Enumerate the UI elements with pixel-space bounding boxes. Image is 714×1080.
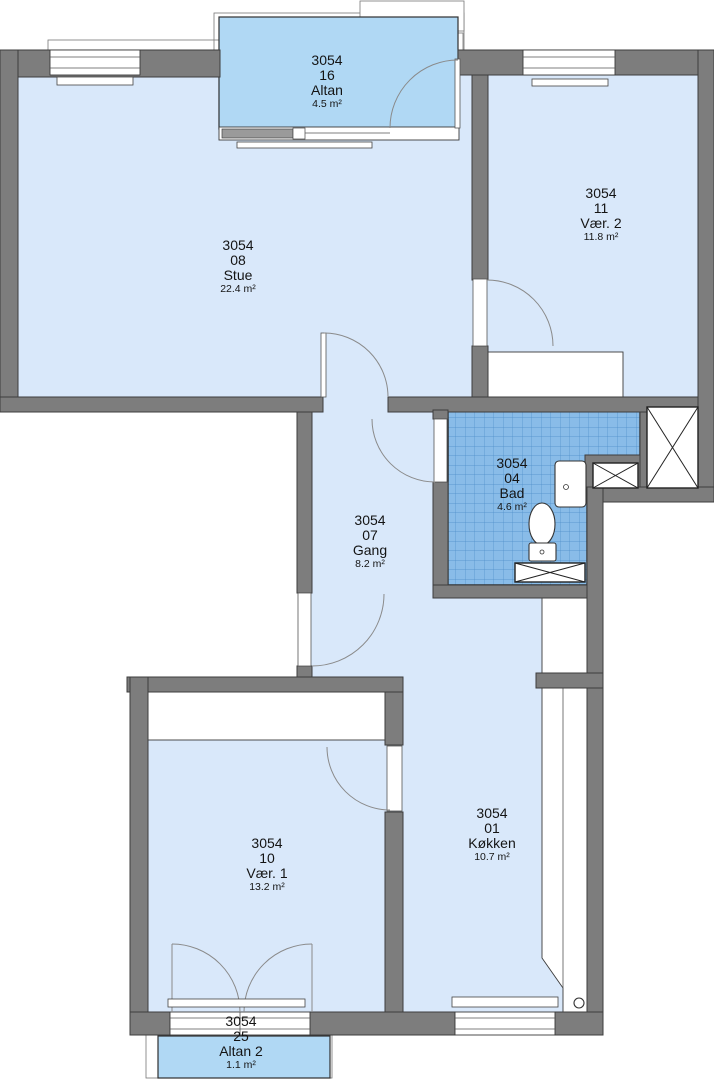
room-no: 01: [468, 821, 515, 836]
radiator-vaer2: [532, 79, 608, 86]
eaves-strip: [48, 40, 220, 50]
room-name: Gang: [353, 543, 387, 558]
radiator-stue-left: [57, 77, 133, 85]
room-id: 3054: [353, 513, 387, 528]
toilet: [529, 503, 556, 561]
window-band-altan: [219, 127, 459, 140]
room-no: 07: [353, 528, 387, 543]
room-area: 4.5 m²: [311, 98, 343, 111]
room-no: 10: [246, 851, 287, 866]
room-id: 3054: [311, 53, 343, 68]
room-id: 3054: [468, 806, 515, 821]
room-no: 16: [311, 68, 343, 83]
pipe-circle: [574, 998, 584, 1008]
label-vaer2: 3054 11 Vær. 2 11.8 m²: [580, 186, 621, 244]
label-koekken: 3054 01 Køkken 10.7 m²: [468, 806, 515, 864]
room-name: Bad: [496, 486, 527, 501]
room-area: 1.1 m²: [219, 1059, 263, 1072]
room-name: Altan 2: [219, 1044, 263, 1059]
label-stue: 3054 08 Stue 22.4 m²: [220, 238, 256, 296]
room-id: 3054: [580, 186, 621, 201]
room-no: 25: [219, 1029, 263, 1044]
room-id: 3054: [246, 836, 287, 851]
shaft-small: [593, 463, 638, 488]
label-gang: 3054 07 Gang 8.2 m²: [353, 513, 387, 571]
window-stue-left: [50, 50, 140, 75]
window-vaer2-top: [523, 50, 615, 75]
label-altan2: 3054 25 Altan 2 1.1 m²: [219, 1014, 263, 1072]
room-id: 3054: [220, 238, 256, 253]
room-name: Vær. 2: [580, 216, 621, 231]
shaft-large: [647, 407, 698, 488]
room-area: 8.2 m²: [353, 558, 387, 571]
room-name: Stue: [220, 268, 256, 283]
room-area: 4.6 m²: [496, 501, 527, 514]
label-vaer1: 3054 10 Vær. 1 13.2 m²: [246, 836, 287, 894]
radiator-stue-altan: [237, 142, 372, 148]
kitchen-counter: [542, 688, 587, 1012]
room-area: 13.2 m²: [246, 881, 287, 894]
room-area: 10.7 m²: [468, 851, 515, 864]
wardrobe-vaer1: [148, 692, 385, 740]
label-altan: 3054 16 Altan 4.5 m²: [311, 53, 343, 111]
bath-appliance-box: [515, 563, 585, 582]
room-no: 08: [220, 253, 256, 268]
label-bad: 3054 04 Bad 4.6 m²: [496, 456, 527, 514]
kitchen-tall-cabinet: [542, 598, 587, 674]
bathroom-sink: [555, 461, 586, 507]
floor-plan: 3054 16 Altan 4.5 m² 3054 08 Stue 22.4 m…: [0, 0, 714, 1080]
room-no: 04: [496, 471, 527, 486]
room-id: 3054: [219, 1014, 263, 1029]
room-area: 22.4 m²: [220, 283, 256, 296]
window-koekken-bottom: [455, 1012, 555, 1035]
wardrobe-vaer2: [488, 352, 623, 398]
radiator-vaer1: [168, 999, 305, 1007]
room-no: 11: [580, 201, 621, 216]
room-name: Altan: [311, 83, 343, 98]
room-name: Køkken: [468, 836, 515, 851]
radiator-koekken: [452, 997, 558, 1007]
room-area: 11.8 m²: [580, 231, 621, 244]
room-name: Vær. 1: [246, 866, 287, 881]
room-id: 3054: [496, 456, 527, 471]
